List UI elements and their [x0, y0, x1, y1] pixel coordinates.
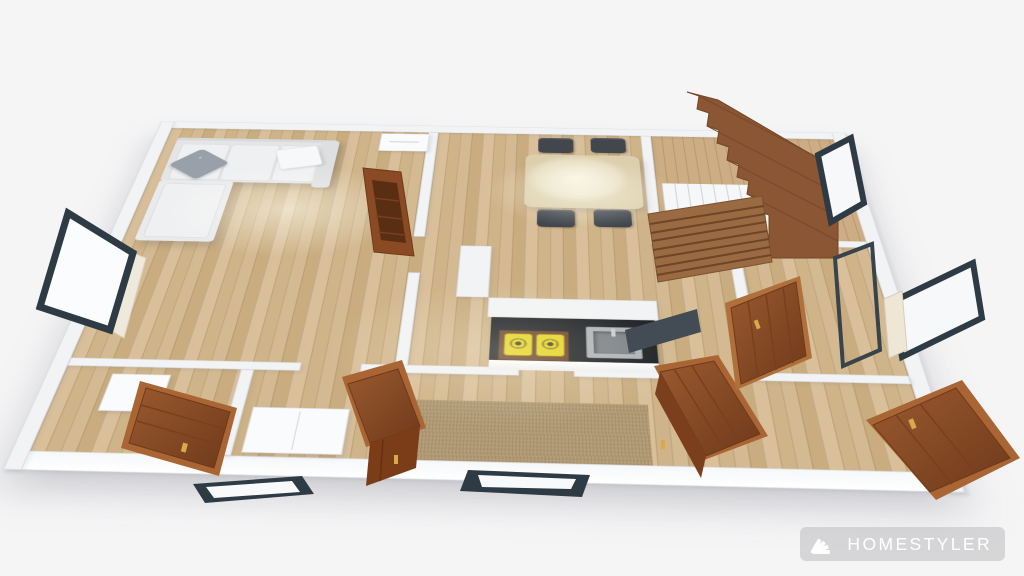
- dining-table: [524, 154, 644, 209]
- gas-burner-2: [536, 334, 565, 357]
- homestyler-brand-text: HOMESTYLER: [847, 534, 992, 555]
- tv-sideboard: [378, 133, 430, 151]
- storage-cabinet-white: [241, 407, 350, 455]
- homestyler-fan-icon: [813, 533, 838, 555]
- gas-burner-1: [503, 333, 533, 356]
- dining-chair-1: [538, 138, 573, 153]
- cabinet-door-seam: [291, 412, 301, 450]
- dining-chair-2: [590, 138, 626, 153]
- floorplan-3d: [3, 121, 965, 493]
- dining-chair-3: [537, 209, 575, 227]
- window-bottom-left: [193, 476, 314, 503]
- homestyler-watermark: HOMESTYLER: [800, 527, 1005, 561]
- render-canvas[interactable]: HOMESTYLER: [0, 0, 1024, 576]
- kitchen-sink: [586, 327, 643, 360]
- sideboard-handle: [389, 141, 419, 142]
- chaise-cushion: [143, 183, 227, 238]
- dining-chair-4: [593, 209, 632, 227]
- sink-faucet: [611, 328, 616, 336]
- understair-wall: [662, 183, 777, 239]
- wall-kitchen-column: [456, 245, 492, 297]
